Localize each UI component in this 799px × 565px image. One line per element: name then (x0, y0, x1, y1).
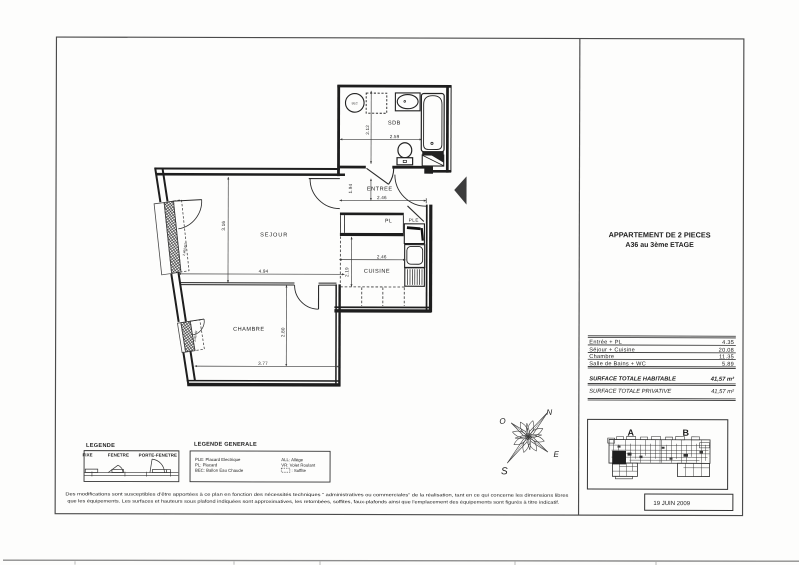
svg-text:2.80: 2.80 (280, 327, 285, 337)
svg-text:SURFACE TOTALE PRIVATIVE: SURFACE TOTALE PRIVATIVE (589, 389, 671, 395)
svg-text:2.12: 2.12 (365, 125, 370, 135)
svg-text:SDB: SDB (388, 120, 401, 126)
svg-text:N: N (546, 408, 552, 417)
svg-text:2.46: 2.46 (377, 254, 387, 259)
svg-text:4.35: 4.35 (722, 340, 734, 346)
svg-text:Séjour + Cuisine: Séjour + Cuisine (589, 347, 635, 353)
svg-text:ALL: Allège: ALL: Allège (281, 457, 303, 462)
svg-text:FENETRE: FENETRE (108, 452, 129, 457)
svg-text:S: S (501, 466, 508, 477)
svg-text:E: E (553, 450, 559, 459)
svg-text:VR: Volet Roulant: VR: Volet Roulant (281, 463, 316, 468)
svg-text:Salle de Bains + WC: Salle de Bains + WC (589, 361, 646, 367)
svg-text:B: B (683, 428, 690, 438)
svg-text:3.77: 3.77 (258, 361, 268, 366)
svg-text:LEGENDE GENERALE: LEGENDE GENERALE (194, 442, 257, 448)
svg-text:PL: PL (385, 218, 392, 224)
svg-text:Chambre: Chambre (589, 354, 614, 360)
svg-text:4.94: 4.94 (259, 269, 269, 274)
svg-text:PLE: PLE (409, 218, 419, 223)
svg-text:O: O (499, 417, 505, 426)
svg-text:2.46: 2.46 (377, 195, 387, 200)
svg-text:A: A (628, 428, 635, 438)
svg-text:SEJOUR: SEJOUR (260, 232, 288, 238)
svg-text:BEC: BEC (352, 101, 359, 105)
svg-text:CHAMBRE: CHAMBRE (233, 327, 265, 333)
svg-text:5.89: 5.89 (722, 362, 734, 368)
svg-text:3.16: 3.16 (221, 221, 226, 231)
svg-text:PL: Placard: PL: Placard (195, 462, 218, 467)
svg-text:CUISINE: CUISINE (364, 269, 390, 275)
svg-text:A36 au 3ème ETAGE: A36 au 3ème ETAGE (625, 242, 694, 249)
svg-text:ENTREE: ENTREE (367, 187, 393, 193)
svg-text:41,57 m²: 41,57 m² (711, 389, 735, 395)
svg-text:2.59: 2.59 (390, 134, 400, 139)
svg-text:1.94: 1.94 (348, 184, 353, 194)
svg-text:11.35: 11.35 (719, 354, 734, 360)
svg-text:PORTE-FENETRE: PORTE-FENETRE (139, 453, 177, 458)
svg-text:SURFACE TOTALE HABITABLE: SURFACE TOTALE HABITABLE (589, 376, 677, 382)
svg-text:LEGENDE: LEGENDE (86, 443, 115, 449)
svg-text:19 JUIN 2009: 19 JUIN 2009 (653, 501, 690, 507)
svg-text:2.19: 2.19 (344, 267, 349, 277)
svg-text:APPARTEMENT DE 2 PIECES: APPARTEMENT DE 2 PIECES (609, 230, 711, 239)
svg-text:PLE: Placard Electrique: PLE: Placard Electrique (195, 457, 241, 462)
svg-text:Entrée + PL: Entrée + PL (589, 340, 622, 346)
svg-text:BEC: Ballon Eau Chaude: BEC: Ballon Eau Chaude (195, 468, 244, 473)
svg-text:: Soffite: : Soffite (291, 468, 306, 473)
svg-text:20.08: 20.08 (719, 348, 734, 354)
svg-text:41,57 m²: 41,57 m² (710, 376, 735, 383)
svg-text:FIXE: FIXE (82, 452, 92, 457)
